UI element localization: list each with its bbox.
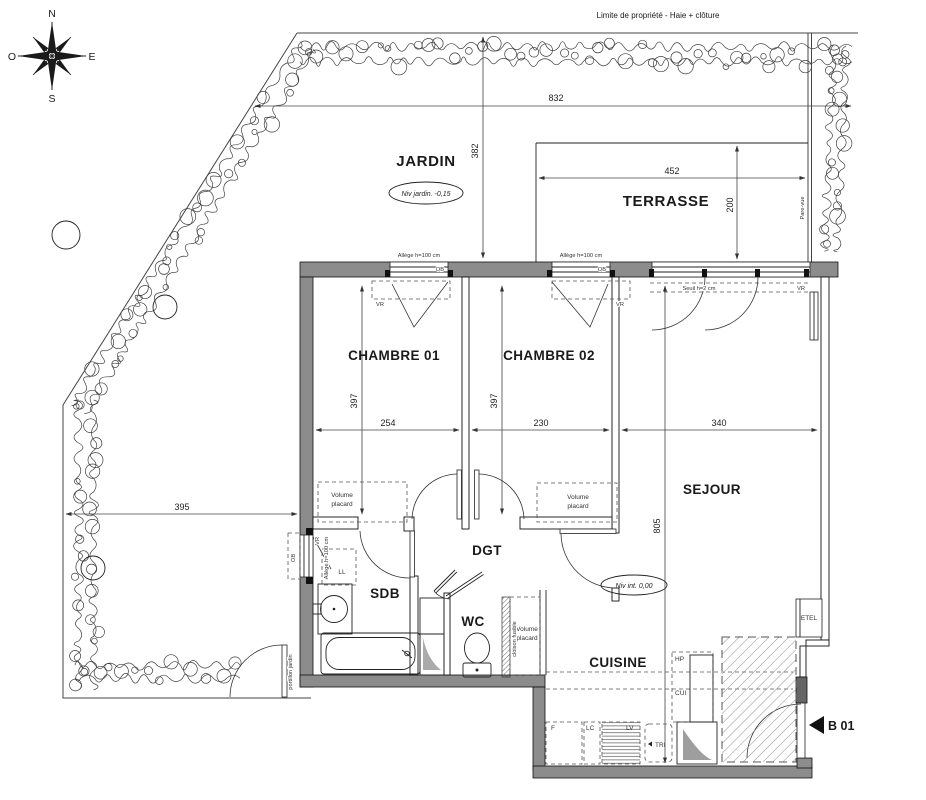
tri-note: TRI — [655, 742, 666, 749]
property-boundary — [63, 33, 858, 698]
b01-arrow-icon — [809, 716, 824, 734]
entry-porch-hatched — [722, 637, 796, 762]
dim-832: 832 — [548, 93, 563, 103]
cloison-note: cloison fusible — [512, 621, 518, 657]
door-leaf-ch1 — [457, 470, 462, 519]
duct-shade — [423, 638, 441, 670]
door-leaf-b01 — [797, 703, 805, 758]
hedge-loop — [593, 43, 603, 53]
hedge-loop — [197, 229, 204, 236]
garden-trees — [52, 221, 177, 580]
hedge-loop — [561, 49, 569, 57]
vr-note-ch1: VR — [376, 302, 384, 308]
etel-note: ETEL — [801, 615, 818, 622]
hedge-loop — [414, 41, 422, 49]
bathtub-inner — [326, 638, 415, 670]
partition-ch2-sejour — [612, 277, 619, 533]
allege-note-sdb: Allège h=100 cm — [324, 536, 330, 579]
sink-shade — [683, 729, 712, 760]
allege-note-ch1: Allège h=100 cm — [398, 253, 441, 259]
room-label-sejour: SEJOUR — [683, 482, 741, 497]
hedge-loop — [799, 60, 811, 72]
hedge-loop — [505, 48, 517, 60]
window-jamb — [610, 270, 615, 277]
wall-jog-h — [806, 640, 829, 646]
placard-ch2-line2: placard — [567, 503, 589, 510]
hedge-loop — [678, 58, 693, 73]
hedge-loop — [71, 573, 78, 580]
entry-bay — [652, 262, 810, 277]
toilet-bowl — [465, 633, 490, 663]
compass-south-label: S — [48, 93, 55, 105]
hedge-loop — [763, 61, 775, 73]
partition-mullion — [404, 517, 414, 531]
hedge-loop — [163, 284, 169, 290]
property-limit-note: Limite de propriété - Haie + clôture — [597, 11, 721, 20]
apartment-id: B 01 — [828, 719, 854, 733]
hedge-loop — [694, 50, 702, 58]
door-leaf-dgt-sejour — [560, 529, 616, 534]
door-jamb — [804, 269, 809, 277]
placard-wc-line1: Volume — [516, 626, 538, 633]
vr-note-entry: VR — [797, 286, 805, 292]
tree-circle — [52, 221, 80, 249]
hedge-loop — [671, 52, 682, 63]
hedge-loop — [74, 478, 80, 484]
gate-leaf — [282, 645, 287, 697]
hedge-loop — [163, 257, 171, 265]
hedge-loop — [828, 159, 835, 166]
dim-395: 395 — [174, 502, 189, 512]
partition-kitchen-top — [540, 590, 546, 675]
hedge-loop — [517, 52, 525, 60]
hedge-squiggle — [72, 42, 302, 406]
window-jamb — [306, 577, 313, 584]
dishwasher-slot — [602, 722, 640, 764]
room-label-sdb: SDB — [370, 586, 400, 601]
hedge-loop — [225, 170, 233, 178]
wall-kitchen-west — [533, 687, 545, 770]
hedge-loop — [761, 54, 767, 60]
placard-ch1-line2: placard — [331, 501, 353, 508]
wall-west — [300, 277, 313, 687]
hedge-loop — [585, 56, 594, 65]
hedge-loop — [731, 51, 743, 63]
wall-corner-stub — [797, 758, 812, 768]
dim-397-ch2: 397 — [489, 393, 499, 408]
gate-swing — [230, 645, 282, 697]
vr-note-sdb: VR — [315, 537, 321, 545]
compass-east-label: E — [88, 51, 95, 63]
hedge-squiggle — [821, 45, 837, 251]
hedge-loop — [287, 89, 294, 96]
wall-east-party — [821, 277, 829, 640]
hedge-loop — [288, 54, 303, 69]
partition-dgt-west — [410, 576, 418, 675]
hedge-loop — [105, 664, 112, 671]
hedge-loop — [87, 564, 97, 574]
window-jamb — [547, 270, 552, 277]
room-label-terrasse: TERRASSE — [623, 193, 709, 210]
hedge-loop — [391, 59, 407, 75]
hedge-squiggle — [75, 660, 240, 670]
door-leaf-ch2 — [475, 470, 480, 519]
hedge-squiggle — [300, 57, 852, 67]
hedge-loop — [841, 51, 849, 59]
hedge-loop — [830, 208, 846, 224]
hedge-loop — [378, 43, 383, 48]
hedge-loop — [138, 286, 151, 299]
hedge-loop — [250, 117, 258, 125]
door-swing-ch1 — [412, 474, 457, 519]
compass-west-label: O — [8, 51, 16, 63]
hedge-loop — [827, 167, 839, 179]
ob-note-ch1: OB — [436, 267, 444, 273]
hedge-loop — [85, 519, 99, 533]
hedge-loop — [653, 57, 668, 72]
room-label-chambre1: CHAMBRE 01 — [348, 348, 440, 363]
placard-wc-line2: placard — [516, 635, 538, 642]
portillon-note: portillon jardin — [288, 654, 294, 689]
hedge-loop — [132, 667, 139, 674]
vr-note-ch2: VR — [616, 302, 624, 308]
fridge-note: F — [551, 725, 555, 732]
hedge-loop — [129, 329, 137, 337]
hedge-squiggle — [74, 400, 84, 690]
dim-382: 382 — [470, 143, 480, 158]
vr-box-ch1 — [372, 281, 450, 299]
hedge-loop — [708, 49, 716, 57]
hedge-loop — [112, 361, 119, 368]
hedge-loop — [73, 600, 84, 611]
hp-note: HP — [675, 656, 684, 663]
room-label-wc: WC — [461, 614, 484, 629]
hedge-squiggle — [833, 46, 851, 252]
lv-note: LV — [626, 725, 634, 732]
hedge-squiggle-border — [70, 36, 852, 690]
hedge-loop — [486, 36, 501, 51]
cui-note: CUI — [675, 690, 686, 697]
hedge-loop — [638, 40, 646, 48]
hedge-loop — [144, 667, 152, 675]
hedge-loop — [286, 73, 299, 86]
partition-ch2-south — [520, 517, 612, 529]
hedge-loop — [571, 52, 578, 59]
ob-note-sdb: OB — [291, 554, 297, 562]
window-jamb — [385, 270, 390, 277]
hedge-loop — [84, 419, 98, 433]
hedge-squiggle — [84, 50, 315, 414]
dim-200: 200 — [725, 197, 735, 212]
hedge-loop — [93, 626, 104, 637]
hedge-loop — [466, 48, 473, 55]
door-jamb — [649, 269, 654, 277]
dim-230: 230 — [533, 418, 548, 428]
hedge-loop — [825, 66, 833, 74]
room-label-jardin: JARDIN — [396, 153, 455, 170]
hedge-loop — [252, 129, 257, 134]
bathtub — [321, 633, 420, 674]
hedge-loop — [723, 64, 729, 70]
hedge-loop — [159, 264, 170, 275]
hedge-loop — [832, 92, 846, 106]
allege-note-ch2: Allège h=100 cm — [560, 253, 603, 259]
window-jamb — [306, 528, 313, 535]
entry-door-swing — [705, 277, 758, 330]
hedge-loop — [326, 41, 339, 54]
hedge-loop — [824, 240, 831, 247]
dim-805: 805 — [652, 518, 662, 533]
door-leaf-wc — [434, 570, 457, 593]
partition-wc-diagonal — [446, 572, 484, 599]
room-label-chambre2: CHAMBRE 02 — [503, 348, 595, 363]
dim-452: 452 — [664, 166, 679, 176]
door-swing-sdb — [360, 531, 410, 578]
level-jardin: Niv jardin. -0,15 — [401, 191, 450, 198]
dim-340: 340 — [711, 418, 726, 428]
basin-tap — [313, 604, 321, 614]
floor-plan-drawing: N S E O 832 382 452 200 395 397 397 254 … — [0, 0, 926, 800]
pare-vue-note: Pare-vue — [800, 196, 806, 219]
door-leaf-sdb — [410, 531, 415, 577]
hedge-loop — [85, 390, 99, 404]
entry-door-swing — [652, 277, 705, 330]
hedge-loop — [180, 209, 196, 225]
duct-shaft — [420, 598, 444, 634]
hedge-loop — [825, 102, 839, 116]
hedge-loop — [70, 679, 82, 691]
door-jamb — [755, 269, 760, 277]
hedge-loop — [618, 54, 633, 69]
seuil-line — [650, 283, 810, 292]
hedge-loop — [770, 48, 784, 62]
hedge-loop — [836, 119, 849, 132]
seuil-note: Seuil h=2 cm — [682, 286, 715, 292]
pare-vue-screen — [808, 33, 812, 262]
wall-pier — [796, 677, 807, 703]
level-interior: Niv int. 0,00 — [616, 583, 653, 590]
floor-plan-page: N S E O 832 382 452 200 395 397 397 254 … — [0, 0, 926, 800]
hedge-loop — [450, 53, 461, 64]
hedge-loop — [85, 362, 99, 376]
washer-note: LL — [338, 569, 346, 576]
hedge-loop — [85, 464, 99, 478]
hedge-loop — [198, 190, 214, 206]
partition-ch1-ch2 — [462, 277, 469, 529]
window-sdb — [300, 535, 313, 577]
partition-wc-west — [444, 593, 450, 675]
hedge-loop — [92, 638, 98, 644]
placard-ch2-line1: Volume — [567, 494, 589, 501]
compass-rose: N S E O — [8, 8, 96, 105]
door-jamb — [702, 269, 707, 277]
hedge-loop — [831, 71, 842, 82]
hedge-squiggle — [75, 673, 240, 683]
hedge-loop — [264, 117, 279, 132]
room-label-cuisine: CUISINE — [589, 655, 647, 670]
lc-note: LC — [586, 725, 595, 732]
door-swing-dgt-sejour — [561, 534, 616, 588]
hedge-loop — [648, 59, 656, 67]
placard-ch1-line1: Volume — [331, 492, 353, 499]
wall-jog-v — [800, 646, 806, 677]
cloison-fusible-partition — [502, 597, 510, 677]
wall-south-kitchen — [533, 766, 812, 778]
hedge-loop — [356, 41, 368, 53]
hedge-loop — [604, 38, 614, 48]
boundary-left — [63, 33, 311, 698]
hedge-loop — [78, 551, 88, 561]
tree-circle — [81, 556, 105, 580]
partition-sdb-north — [313, 517, 358, 529]
hedge-loop — [339, 47, 353, 61]
door-swing-ch2 — [479, 474, 524, 519]
tri-arrow-icon — [648, 742, 652, 747]
hedge-loop — [217, 669, 231, 683]
compass-north-label: N — [48, 8, 56, 20]
hedge-loop — [81, 668, 88, 675]
dim-397-ch1: 397 — [349, 393, 359, 408]
openings — [288, 262, 818, 584]
dim-254: 254 — [380, 418, 395, 428]
room-label-dgt: DGT — [472, 543, 502, 558]
hedge-loop — [432, 38, 443, 49]
hedge-loop — [76, 535, 84, 543]
kitchen-units — [546, 599, 824, 764]
ob-note-ch2: OB — [598, 267, 606, 273]
hedge-loop — [788, 48, 795, 55]
hedge-loop — [834, 189, 840, 195]
hedge-loop — [88, 453, 103, 468]
window-jamb — [448, 270, 453, 277]
tall-unit-inner — [690, 655, 713, 722]
